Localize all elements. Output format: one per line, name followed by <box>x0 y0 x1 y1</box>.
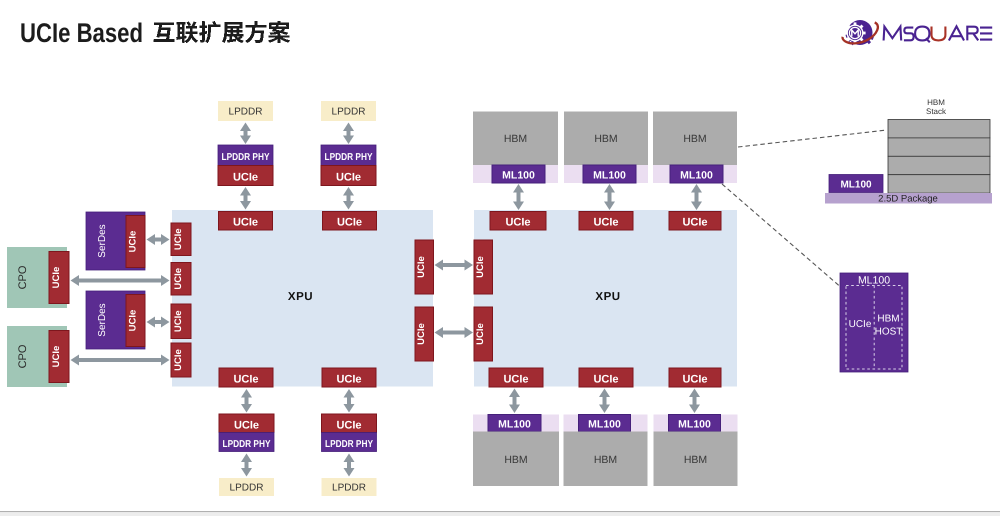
svg-text:UCIe: UCIe <box>682 374 707 386</box>
svg-text:UCIe: UCIe <box>682 217 707 229</box>
svg-text:ML100: ML100 <box>680 169 713 181</box>
svg-text:HBM: HBM <box>504 133 527 145</box>
svg-text:CPO: CPO <box>17 265 29 289</box>
svg-text:ML100: ML100 <box>678 418 711 430</box>
svg-text:LPDDR PHY: LPDDR PHY <box>325 152 373 163</box>
svg-text:HBM: HBM <box>684 454 707 466</box>
svg-text:UCIe: UCIe <box>416 323 427 345</box>
svg-text:ML100: ML100 <box>502 169 535 181</box>
svg-text:UCIe: UCIe <box>51 267 62 289</box>
svg-text:UCIe: UCIe <box>336 374 361 386</box>
svg-text:HBM: HBM <box>877 314 899 325</box>
svg-text:HOST: HOST <box>875 327 903 338</box>
svg-text:HBM: HBM <box>683 133 706 145</box>
svg-text:UCIe: UCIe <box>416 256 427 278</box>
svg-text:LPDDR PHY: LPDDR PHY <box>223 439 271 450</box>
svg-text:UCIe: UCIe <box>336 420 361 432</box>
svg-text:UCIe: UCIe <box>173 349 184 371</box>
svg-text:UCIe Based: UCIe Based <box>20 18 143 48</box>
svg-text:ML100: ML100 <box>858 275 890 287</box>
svg-text:LPDDR: LPDDR <box>229 107 263 118</box>
svg-text:XPU: XPU <box>595 291 620 303</box>
svg-text:Stack: Stack <box>926 107 947 116</box>
svg-text:ML100: ML100 <box>840 180 872 191</box>
svg-text:UCIe: UCIe <box>849 319 872 330</box>
svg-text:UCIe: UCIe <box>233 172 258 184</box>
svg-text:ML100: ML100 <box>498 418 531 430</box>
svg-text:LPDDR: LPDDR <box>230 483 264 494</box>
svg-text:UCIe: UCIe <box>593 374 618 386</box>
svg-text:UCIe: UCIe <box>128 310 139 332</box>
svg-text:SerDes: SerDes <box>97 224 108 257</box>
svg-text:UCIe: UCIe <box>475 323 486 345</box>
svg-text:UCIe: UCIe <box>173 228 184 250</box>
svg-text:2.5D Package: 2.5D Package <box>878 194 938 205</box>
svg-text:LPDDR PHY: LPDDR PHY <box>222 152 270 163</box>
svg-text:HBM: HBM <box>594 454 617 466</box>
svg-text:LPDDR: LPDDR <box>332 107 366 118</box>
svg-text:ML100: ML100 <box>593 169 626 181</box>
svg-text:LPDDR: LPDDR <box>332 483 366 494</box>
svg-text:UCIe: UCIe <box>505 217 530 229</box>
svg-text:UCIe: UCIe <box>475 256 486 278</box>
svg-text:UCIe: UCIe <box>593 217 618 229</box>
svg-text:UCIe: UCIe <box>233 374 258 386</box>
svg-text:LPDDR PHY: LPDDR PHY <box>325 439 373 450</box>
svg-text:HBM: HBM <box>504 454 527 466</box>
svg-text:UCIe: UCIe <box>233 217 258 229</box>
svg-text:UCIe: UCIe <box>128 231 139 253</box>
svg-text:UCIe: UCIe <box>173 310 184 332</box>
svg-text:UCIe: UCIe <box>234 420 259 432</box>
svg-text:XPU: XPU <box>288 291 313 303</box>
svg-text:UCIe: UCIe <box>173 268 184 290</box>
svg-text:UCIe: UCIe <box>336 172 361 184</box>
svg-text:HBM: HBM <box>594 133 617 145</box>
svg-text:CPO: CPO <box>17 344 29 368</box>
svg-text:UCIe: UCIe <box>337 217 362 229</box>
svg-text:ML100: ML100 <box>588 418 621 430</box>
svg-text:HBM: HBM <box>927 98 945 107</box>
svg-text:SerDes: SerDes <box>97 303 108 336</box>
svg-text:UCIe: UCIe <box>51 346 62 368</box>
svg-text:UCIe: UCIe <box>503 374 528 386</box>
